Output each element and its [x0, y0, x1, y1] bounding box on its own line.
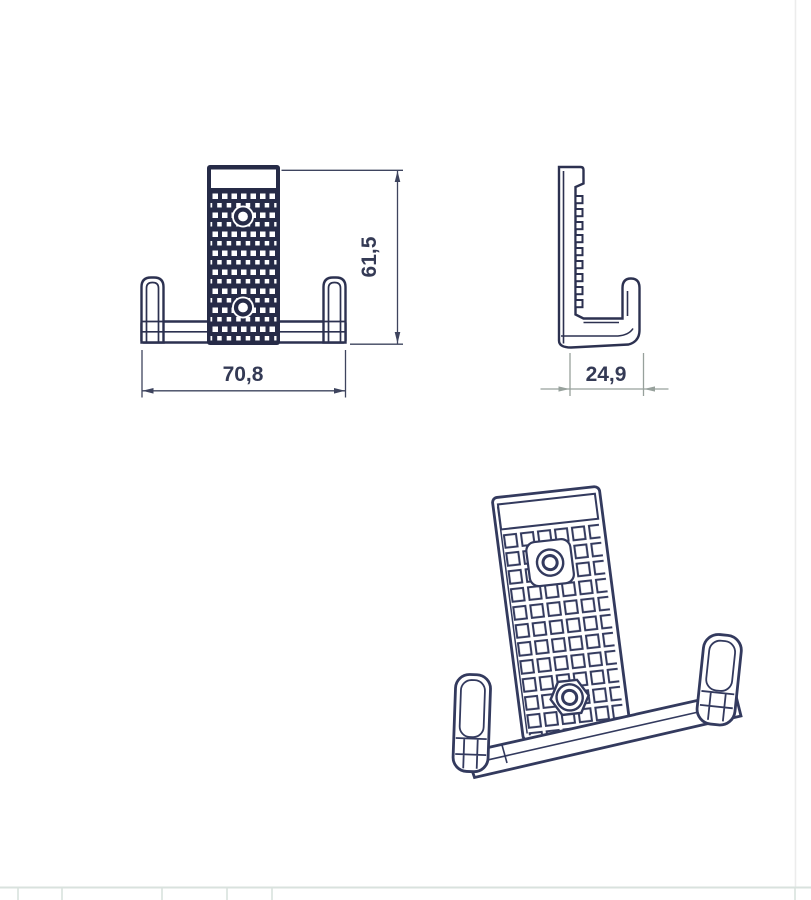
arrowhead-left	[644, 386, 655, 391]
dim-side-depth-label: 24,9	[586, 363, 627, 386]
front-screw-hole-top	[232, 206, 254, 228]
side-view	[559, 167, 640, 348]
side-profile-outline	[559, 167, 640, 348]
front-mounting-plate	[207, 165, 280, 345]
arrowhead-right	[559, 386, 570, 391]
iso-right-hook	[696, 633, 743, 726]
front-right-hook	[324, 278, 346, 343]
sheet-gridlines	[0, 0, 811, 900]
arrowhead-left	[142, 388, 153, 394]
front-screw-hole-bottom	[232, 297, 254, 319]
arrowhead-down	[395, 332, 401, 344]
iso-left-hook	[453, 674, 491, 772]
arrowhead-right	[334, 388, 345, 394]
front-left-hook	[142, 278, 164, 343]
side-dimensions: 24,9	[541, 353, 669, 396]
dim-front-width-label: 70,8	[223, 363, 264, 386]
isometric-view	[453, 486, 743, 777]
technical-drawing-canvas: 61,5 70,8	[0, 0, 811, 900]
front-view	[142, 165, 346, 345]
drawing-sheet: 61,5 70,8	[0, 0, 811, 900]
arrowhead-up	[395, 171, 401, 182]
iso-screw-hole-top	[525, 538, 575, 587]
iso-mounting-plate	[492, 486, 631, 741]
side-serrations	[576, 196, 583, 307]
dim-front-height-label: 61,5	[358, 236, 381, 277]
